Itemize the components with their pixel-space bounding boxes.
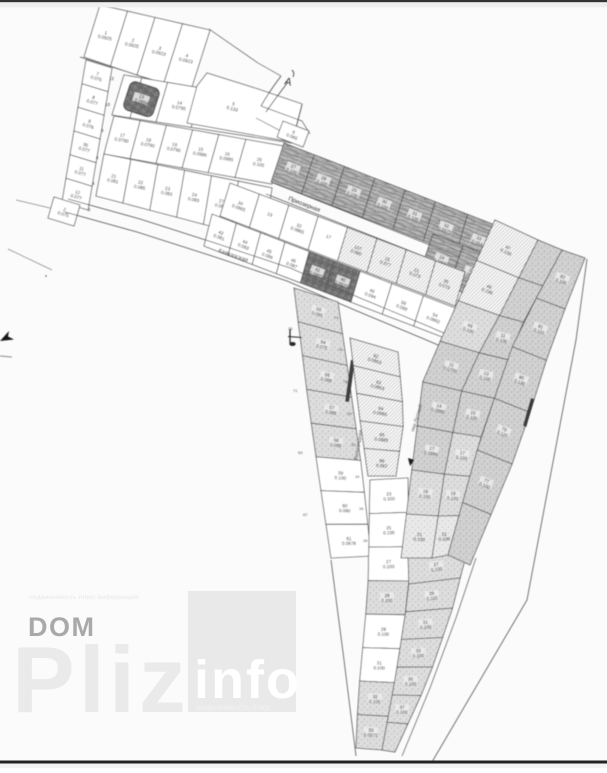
svg-text:78: 78 [343,379,348,384]
svg-text:0.100: 0.100 [396,709,408,714]
svg-text:0.100: 0.100 [413,537,425,543]
svg-text:0.100: 0.100 [369,699,381,705]
svg-text:Pliz: Pliz [12,627,190,732]
svg-text:0.100: 0.100 [373,665,385,670]
svg-text:36: 36 [359,506,364,511]
svg-text:0.100: 0.100 [334,475,346,481]
svg-text:34: 34 [355,474,360,479]
svg-text:0.0575: 0.0575 [364,732,379,738]
svg-text:недвижимость плюс информация: недвижимость плюс информация [29,594,139,601]
svg-text:69: 69 [298,450,303,455]
svg-text:12: 12 [109,76,114,81]
svg-text:0.100: 0.100 [378,632,390,637]
svg-text:0.0878: 0.0878 [342,541,357,546]
svg-text:38: 38 [363,538,368,543]
svg-text:0.100: 0.100 [383,564,395,569]
svg-text:71: 71 [293,388,298,393]
svg-text:0.100: 0.100 [413,653,425,659]
svg-text:0.090: 0.090 [339,508,351,513]
svg-text:30: 30 [347,411,352,416]
svg-text:0.100: 0.100 [383,496,395,502]
svg-text:0.100: 0.100 [420,624,432,630]
svg-text:67: 67 [303,512,308,517]
svg-text:0.082: 0.082 [376,463,388,469]
svg-text:недвижимость плюс: недвижимость плюс [196,703,271,712]
svg-text:0.100: 0.100 [381,598,393,603]
svg-text:0.100: 0.100 [383,530,395,535]
svg-text:0.100: 0.100 [447,495,459,501]
svg-text:10: 10 [105,102,110,107]
svg-text:0.100: 0.100 [405,681,417,686]
svg-text:74: 74 [334,315,339,320]
svg-text:76: 76 [338,347,343,352]
svg-text:info: info [194,650,301,710]
svg-text:0.100: 0.100 [439,536,451,541]
